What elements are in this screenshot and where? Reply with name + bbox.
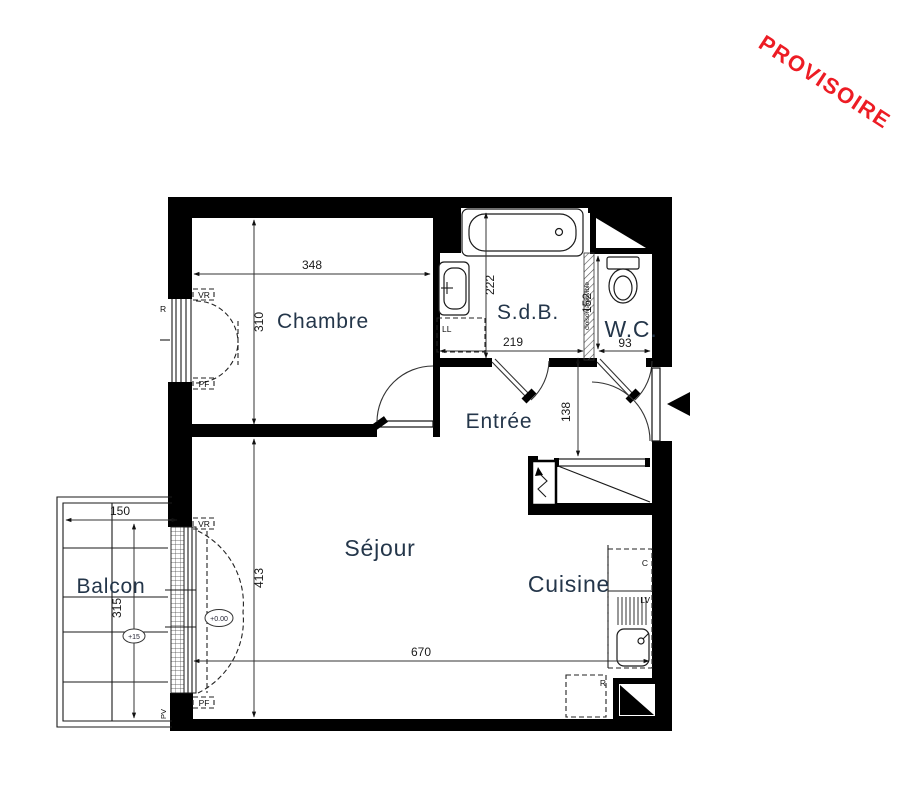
sdb-door <box>492 359 549 401</box>
dim-entree-height: 138 <box>559 402 573 422</box>
dim-sejour-width: 670 <box>411 645 431 659</box>
entrance-arrow-icon <box>667 392 690 416</box>
dim-chambre-width: 348 <box>302 258 322 272</box>
duct-box-cuisine <box>616 681 658 719</box>
level-balcon-value: +15 <box>128 634 140 641</box>
fridge-tag: R <box>600 678 606 688</box>
cooker-tag: C <box>642 558 648 568</box>
balcony-door <box>165 518 243 708</box>
room-label-balcon: Balcon <box>76 575 145 598</box>
water-heater <box>532 461 556 505</box>
room-label-chambre: Chambre <box>277 310 369 333</box>
dim-wc-height: 152 <box>580 293 594 313</box>
toilet <box>607 257 639 303</box>
entrance-door <box>592 368 660 441</box>
dim-sdb-height: 222 <box>483 275 497 295</box>
dishwasher-tag: LV <box>640 595 650 605</box>
dim-balcon-height: 315 <box>110 598 124 618</box>
chambre-door <box>372 366 433 429</box>
chambre-window-vr-tag: VR <box>198 290 210 300</box>
wc-door <box>597 359 652 401</box>
washbasin <box>439 262 469 315</box>
dim-sejour-height: 413 <box>252 568 266 588</box>
chambre-window <box>160 289 238 389</box>
kitchen-sink <box>617 597 649 666</box>
room-label-wc: W.C. <box>604 316 657 342</box>
floor-plan-page: VR PF R VR PF PV LL <box>0 0 909 800</box>
dim-sdb-width: 219 <box>503 335 523 349</box>
room-label-entree: Entrée <box>466 410 533 433</box>
bathtub <box>462 209 583 256</box>
dim-chambre-height: 310 <box>252 312 266 332</box>
balcony-door-pf-tag: PF <box>199 698 210 708</box>
radiator-tag: R <box>160 304 166 314</box>
room-label-cuisine: Cuisine <box>528 571 610 597</box>
chambre-window-pf-tag: PF <box>199 379 210 389</box>
entry-closet <box>554 458 650 502</box>
floor-plan-drawing: VR PF R VR PF PV LL <box>0 0 909 800</box>
washing-machine-tag: LL <box>442 324 452 334</box>
level-sejour-value: +0.00 <box>210 616 228 623</box>
balcony-door-pv-tag: PV <box>159 709 168 719</box>
room-label-sdb: S.d.B. <box>497 301 559 324</box>
duct-box-sdb <box>593 215 649 251</box>
room-label-sejour: Séjour <box>344 535 415 561</box>
balcony-door-vr-tag: VR <box>198 519 210 529</box>
dim-balcon-width: 150 <box>110 504 130 518</box>
